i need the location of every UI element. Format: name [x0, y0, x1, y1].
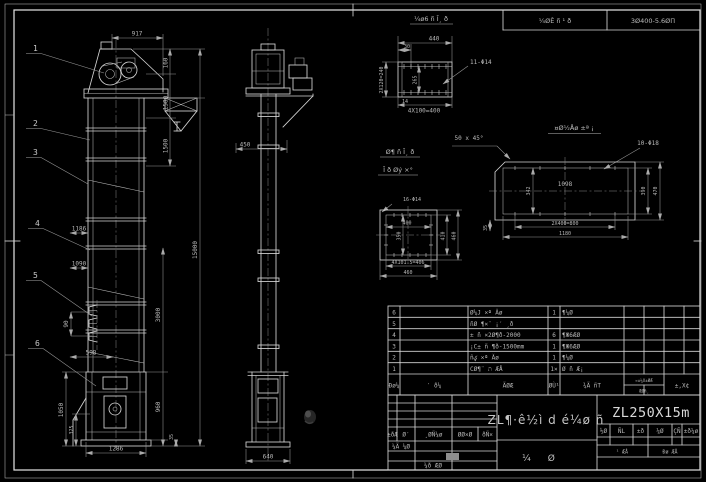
- dim-flange-b2: 460: [403, 270, 412, 276]
- part-no: 1: [392, 366, 396, 373]
- part-mat: ¶¼Ø: [562, 310, 573, 317]
- balloon-6: 6: [35, 339, 40, 348]
- dim-channel-inner: 265: [413, 75, 419, 84]
- row-design-label: ¼Ã ¼Ø: [392, 444, 410, 451]
- channel-hole-ticks: [404, 64, 446, 95]
- header-note: ±,X¢: [675, 383, 690, 390]
- flange-label-2: Ī ð Øý ×°: [383, 165, 413, 174]
- top-strip-right-label: 3Ø400-5.6ØΠ: [631, 17, 675, 25]
- item-balloons: 1 2 3 4 5 6: [26, 44, 104, 386]
- dim-head-width: 917: [132, 31, 143, 38]
- part-desc: ñؼ ×ª Ăø: [470, 355, 499, 362]
- header-qty: ØÙ¹: [549, 383, 560, 390]
- channel-detail-label: ¼ø6 ñ Ī¸ ð: [414, 14, 448, 23]
- front-view-dimensions: 917 160 1580 1500 15000 3000 960 35 1186…: [58, 31, 205, 458]
- parts-table: 6 Ø¼J ×ª Ăø 1 ¶¼Ø 5 ñØ ¶×¨ ¡′ ¸ð 4 ± ñ ×…: [388, 306, 700, 395]
- balloon-4: 4: [35, 219, 40, 228]
- header-no: Ðø¼: [389, 383, 400, 390]
- channel-detail: ¼ø6 ñ Ī¸ ð 440 30 11-Φ14 2X120=240 265 1…: [379, 14, 492, 115]
- part-mat: ¶Ж6ÆØ: [562, 332, 580, 339]
- part-desc: ± ñ ×2Ø¶ð-2000: [470, 332, 521, 339]
- part-no: 2: [392, 355, 396, 362]
- stage-c4: ¼Ø: [656, 428, 664, 435]
- dim-head-h2: 1580: [163, 95, 170, 110]
- dim-base-plate: 35: [169, 434, 175, 440]
- dim-mid1: 1186: [72, 226, 87, 233]
- channel-holes-callout: 11-Φ14: [470, 59, 492, 66]
- dim-flange-inner-w: 400: [402, 221, 411, 227]
- part-mat: ¶¼Ø: [562, 355, 573, 362]
- dim-channel-width: 440: [429, 36, 440, 43]
- dim-boot-inner: 325: [69, 425, 75, 434]
- stage-c1: ½Ø: [600, 428, 608, 435]
- dim-bucket: 90: [63, 320, 70, 328]
- cad-drawing-window: ¼ØÊ ñ ¹ ð 3Ø400-5.6ØΠ: [0, 0, 706, 482]
- dim-head-h1: 160: [163, 57, 170, 68]
- flange-holes-callout: 16-Φ14: [403, 197, 421, 203]
- dim-channel-bottom: 4X100=400: [408, 108, 441, 115]
- header-name: ÃØÆ: [503, 383, 514, 390]
- rev-h1: ±ðǼ: [387, 431, 398, 439]
- dim-total-height: 15000: [192, 241, 199, 259]
- dim-mid2: 1090: [72, 261, 87, 268]
- dim-flange-inner-h: 350: [397, 231, 403, 240]
- part-qty: 1: [552, 343, 556, 350]
- part-mat: ¶Ж6ÆØ: [562, 343, 580, 350]
- part-no: 4: [392, 332, 396, 339]
- part-desc: Ø¼J ×ª Ăø: [470, 310, 503, 317]
- stage-row: ½Ø ÑL ±ð ¼Ø ÇÑ ±ð¼ø: [600, 428, 699, 435]
- header-material: ¾Ã ñT: [583, 383, 601, 390]
- dim-plate-b1: 2X400=800: [551, 221, 578, 227]
- dim-flange-r1: 410: [441, 231, 447, 240]
- top-strip-left-label: ¼ØÊ ñ ¹ ð: [539, 16, 571, 25]
- dim-flange-r2: 460: [452, 231, 458, 240]
- model-number: ZL250X15m: [612, 405, 690, 421]
- part-qty: 1: [552, 355, 556, 362]
- part-qty: 1×: [550, 366, 558, 373]
- dim-base-width: 1286: [109, 446, 124, 453]
- part-no: 6: [392, 310, 396, 317]
- dim-plate-r1: 390: [641, 186, 647, 195]
- dim-plate-b2: 1180: [559, 231, 571, 237]
- part-desc: ñØ ¶×¨ ¡′ ¸ð: [470, 321, 514, 328]
- dim-inlet: 598: [86, 350, 97, 357]
- boot-section: [73, 372, 151, 446]
- header-weight: ¤±¼X±ØÆ: [635, 378, 653, 384]
- dim-section-h: 1500: [163, 138, 170, 153]
- dim-side-width: 450: [240, 142, 251, 149]
- dim-plate-left: 342: [526, 186, 532, 195]
- dim-channel-offset: 30: [404, 44, 410, 50]
- flange-label-1: Ø¶ ñ Ī¸ ð: [386, 147, 415, 156]
- revision-labels: ±ðǼ Ø′ ¸ØÑ¼ø ØØ×Ø ðÑ× ¼Ã ¼Ø ¼ð ÆØ: [387, 431, 493, 470]
- drawing-title: ZL¶·ê½ì d é¼ø ñ: [488, 413, 605, 427]
- plate-holes-callout: 10-Φ18: [637, 140, 659, 147]
- part-desc: ¡C± ñ ¶ð-1500mm: [470, 343, 525, 350]
- balloon-2: 2: [33, 119, 38, 128]
- rev-h3: ¸ØÑ¼ø: [424, 432, 442, 439]
- plate-detail: ¤Ø½Åø ±ª ¡ 50 x 45° 10-Φ18 1098 342 390 …: [452, 123, 664, 240]
- stage-c6: ±ð¼ø: [684, 428, 699, 435]
- stage-c5: ÇÑ: [673, 428, 681, 435]
- drawing-canvas[interactable]: ¼ØÊ ñ ¹ ð 3Ø400-5.6ØΠ: [0, 0, 706, 482]
- front-view: 917 160 1580 1500 15000 3000 960 35 1186…: [26, 31, 205, 458]
- dim-plate-inner: 1098: [558, 181, 573, 188]
- part-qty: 6: [552, 332, 556, 339]
- dim-plate-side: 35: [483, 225, 489, 231]
- rev-h5: ðÑ×: [482, 432, 493, 439]
- drawing-subtitle: ¼ Ø: [522, 453, 562, 464]
- dim-boot-h: 1050: [58, 402, 65, 417]
- sheet-right-label: Ðø ÆÅ: [662, 449, 677, 456]
- dim-plate-r2: 470: [653, 186, 659, 195]
- balloon-3: 3: [33, 148, 38, 157]
- channel-note: 14: [402, 99, 408, 105]
- stage-c3: ±ð: [637, 428, 645, 435]
- part-no: 3: [392, 343, 396, 350]
- title-block: ±ðǼ Ø′ ¸ØÑ¼ø ØØ×Ø ðÑ× ¼Ã ¼Ø ¼ð ÆØ ZL¶·ê½…: [387, 395, 700, 470]
- side-view: 450 640: [236, 28, 313, 464]
- row-check-label: ¼ð ÆØ: [424, 463, 442, 470]
- rev-h2: Ø′: [402, 432, 409, 439]
- dim-lower-h: 3000: [155, 307, 162, 322]
- top-strip: ¼ØÊ ñ ¹ ð 3Ø400-5.6ØΠ: [503, 10, 700, 30]
- dim-flange-b1: 4X101.5=406: [391, 260, 424, 266]
- cursor-artifact: [304, 410, 316, 424]
- parts-table-header: Ðø¼ ′ ð¼ ÃØÆ ØÙ¹ ¾Ã ñT ¤±¼X±ØÆ ÆØñ¸ ±,X¢: [389, 378, 690, 394]
- sheet-left-label: ¹ ÆÅ: [616, 449, 628, 456]
- part-no: 5: [392, 321, 396, 328]
- stamp-blob: [446, 453, 459, 460]
- header-weight-sub: ÆØñ¸: [639, 389, 649, 394]
- balloon-5: 5: [33, 271, 38, 280]
- part-desc: CØ¶¨ ת ÆÅ: [470, 366, 503, 373]
- flange-detail: Ø¶ ñ Ī¸ ð Ī ð Øý ×° 16-Φ14 400 350 410 4…: [376, 147, 462, 280]
- part-mat: Ø ñ Æ¡: [562, 366, 584, 373]
- dim-side-base: 640: [263, 454, 274, 461]
- balloon-1: 1: [33, 44, 38, 53]
- plate-chamfer-note: 50 x 45°: [455, 135, 484, 142]
- plate-label: ¤Ø½Åø ±ª ¡: [554, 123, 593, 132]
- dim-boot-h2: 960: [155, 401, 162, 412]
- parts-table-rows: 6 Ø¼J ×ª Ăø 1 ¶¼Ø 5 ñØ ¶×¨ ¡′ ¸ð 4 ± ñ ×…: [392, 310, 584, 374]
- header-code: ′ ð¼: [427, 383, 442, 390]
- stage-c2: ÑL: [618, 428, 626, 435]
- dim-channel-left: 2X120=240: [379, 66, 385, 93]
- part-qty: 1: [552, 310, 556, 317]
- rev-h4: ØØ×Ø: [458, 432, 473, 439]
